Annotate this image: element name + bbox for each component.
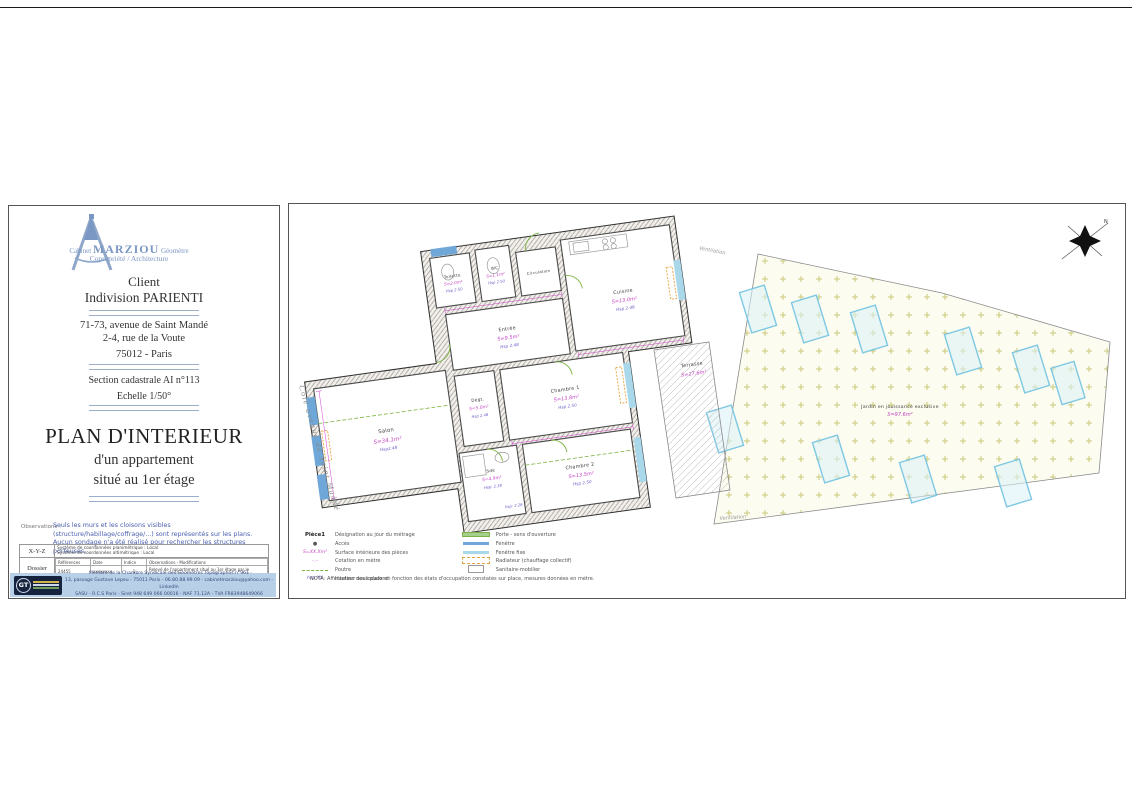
garden-area: Jardin en jouissance exclusive S=97.6m² <box>706 254 1110 524</box>
legend-item: Radiateur (chauffage collectif) <box>461 558 572 565</box>
legend-label: Désignation au jour du métrage <box>335 532 415 538</box>
room-label-jardin: Jardin en jouissance exclusive <box>860 404 939 410</box>
room-area-jardin: S=97.6m² <box>887 412 912 418</box>
fixture-swatch-icon <box>461 565 491 575</box>
window-swatch-icon <box>461 541 491 547</box>
legend-label: Fenêtre <box>496 541 515 547</box>
legend-item: Poutre <box>300 567 415 574</box>
legend-right-column: Porte - sens d'ouverture Fenêtre Fenêtre… <box>461 532 572 582</box>
legend-item: Pièce1 Désignation au jour du métrage <box>300 532 415 539</box>
legend-item: Fenêtre fixe <box>461 549 572 556</box>
room-name-swatch: Pièce1 <box>300 532 330 538</box>
legend-item: Fenêtre <box>461 541 572 548</box>
legend-item: S=XX.Xm² Surface intérieure des pièces <box>300 549 415 556</box>
terrace-area: Terrasse S=17.6m² <box>654 342 730 498</box>
compass-north-label: N <box>1104 219 1108 225</box>
access-dot-icon: ● <box>300 541 330 547</box>
legend-left-column: Pièce1 Désignation au jour du métrage ● … <box>300 532 415 582</box>
legend-label: Poutre <box>335 567 351 573</box>
nota-text: NOTA: Affectation des locaux en fonction… <box>310 576 870 582</box>
room-salon <box>314 370 461 500</box>
drawing-sheet: Cabinet MARZIOU Géomètre Copropriété / A… <box>0 0 1132 800</box>
legend-label: Fenêtre fixe <box>496 550 526 556</box>
floor-plan: Jardin en jouissance exclusive S=97.6m² … <box>0 0 1132 800</box>
legend-label: Surface intérieure des pièces <box>335 550 408 556</box>
fixed-window-swatch-icon <box>461 550 491 556</box>
compass-rose-icon: N <box>1062 219 1108 259</box>
legend-item: -.-- Cotation en mètre <box>300 558 415 565</box>
legend: Pièce1 Désignation au jour du métrage ● … <box>300 532 820 582</box>
legend-label: Accès <box>335 541 350 547</box>
legend-item: Porte - sens d'ouverture <box>461 532 572 539</box>
room-chambre2 <box>522 429 640 512</box>
legend-label: Radiateur (chauffage collectif) <box>496 558 572 564</box>
legend-item: Sanitaire-mobilier <box>461 567 572 574</box>
room-label-wc: WC <box>491 265 499 271</box>
area-swatch: S=XX.Xm² <box>300 550 330 555</box>
ventilation-label-top: Ventilation <box>698 246 725 257</box>
apartment-building: Toilette S=2.0m² Hsp 2.50 WC S=1.1m² Hsp… <box>288 214 714 552</box>
legend-label: Cotation en mètre <box>335 558 381 564</box>
legend-label: Sanitaire-mobilier <box>496 567 540 573</box>
door-swatch-icon <box>461 532 491 539</box>
beam-swatch-icon <box>300 567 330 573</box>
legend-label: Porte - sens d'ouverture <box>496 532 556 538</box>
legend-item: ● Accès <box>300 541 415 548</box>
dimension-swatch: -.-- <box>300 559 330 564</box>
ventilation-label-bottom: Ventilation <box>719 514 746 522</box>
room-cuisine <box>560 225 685 351</box>
